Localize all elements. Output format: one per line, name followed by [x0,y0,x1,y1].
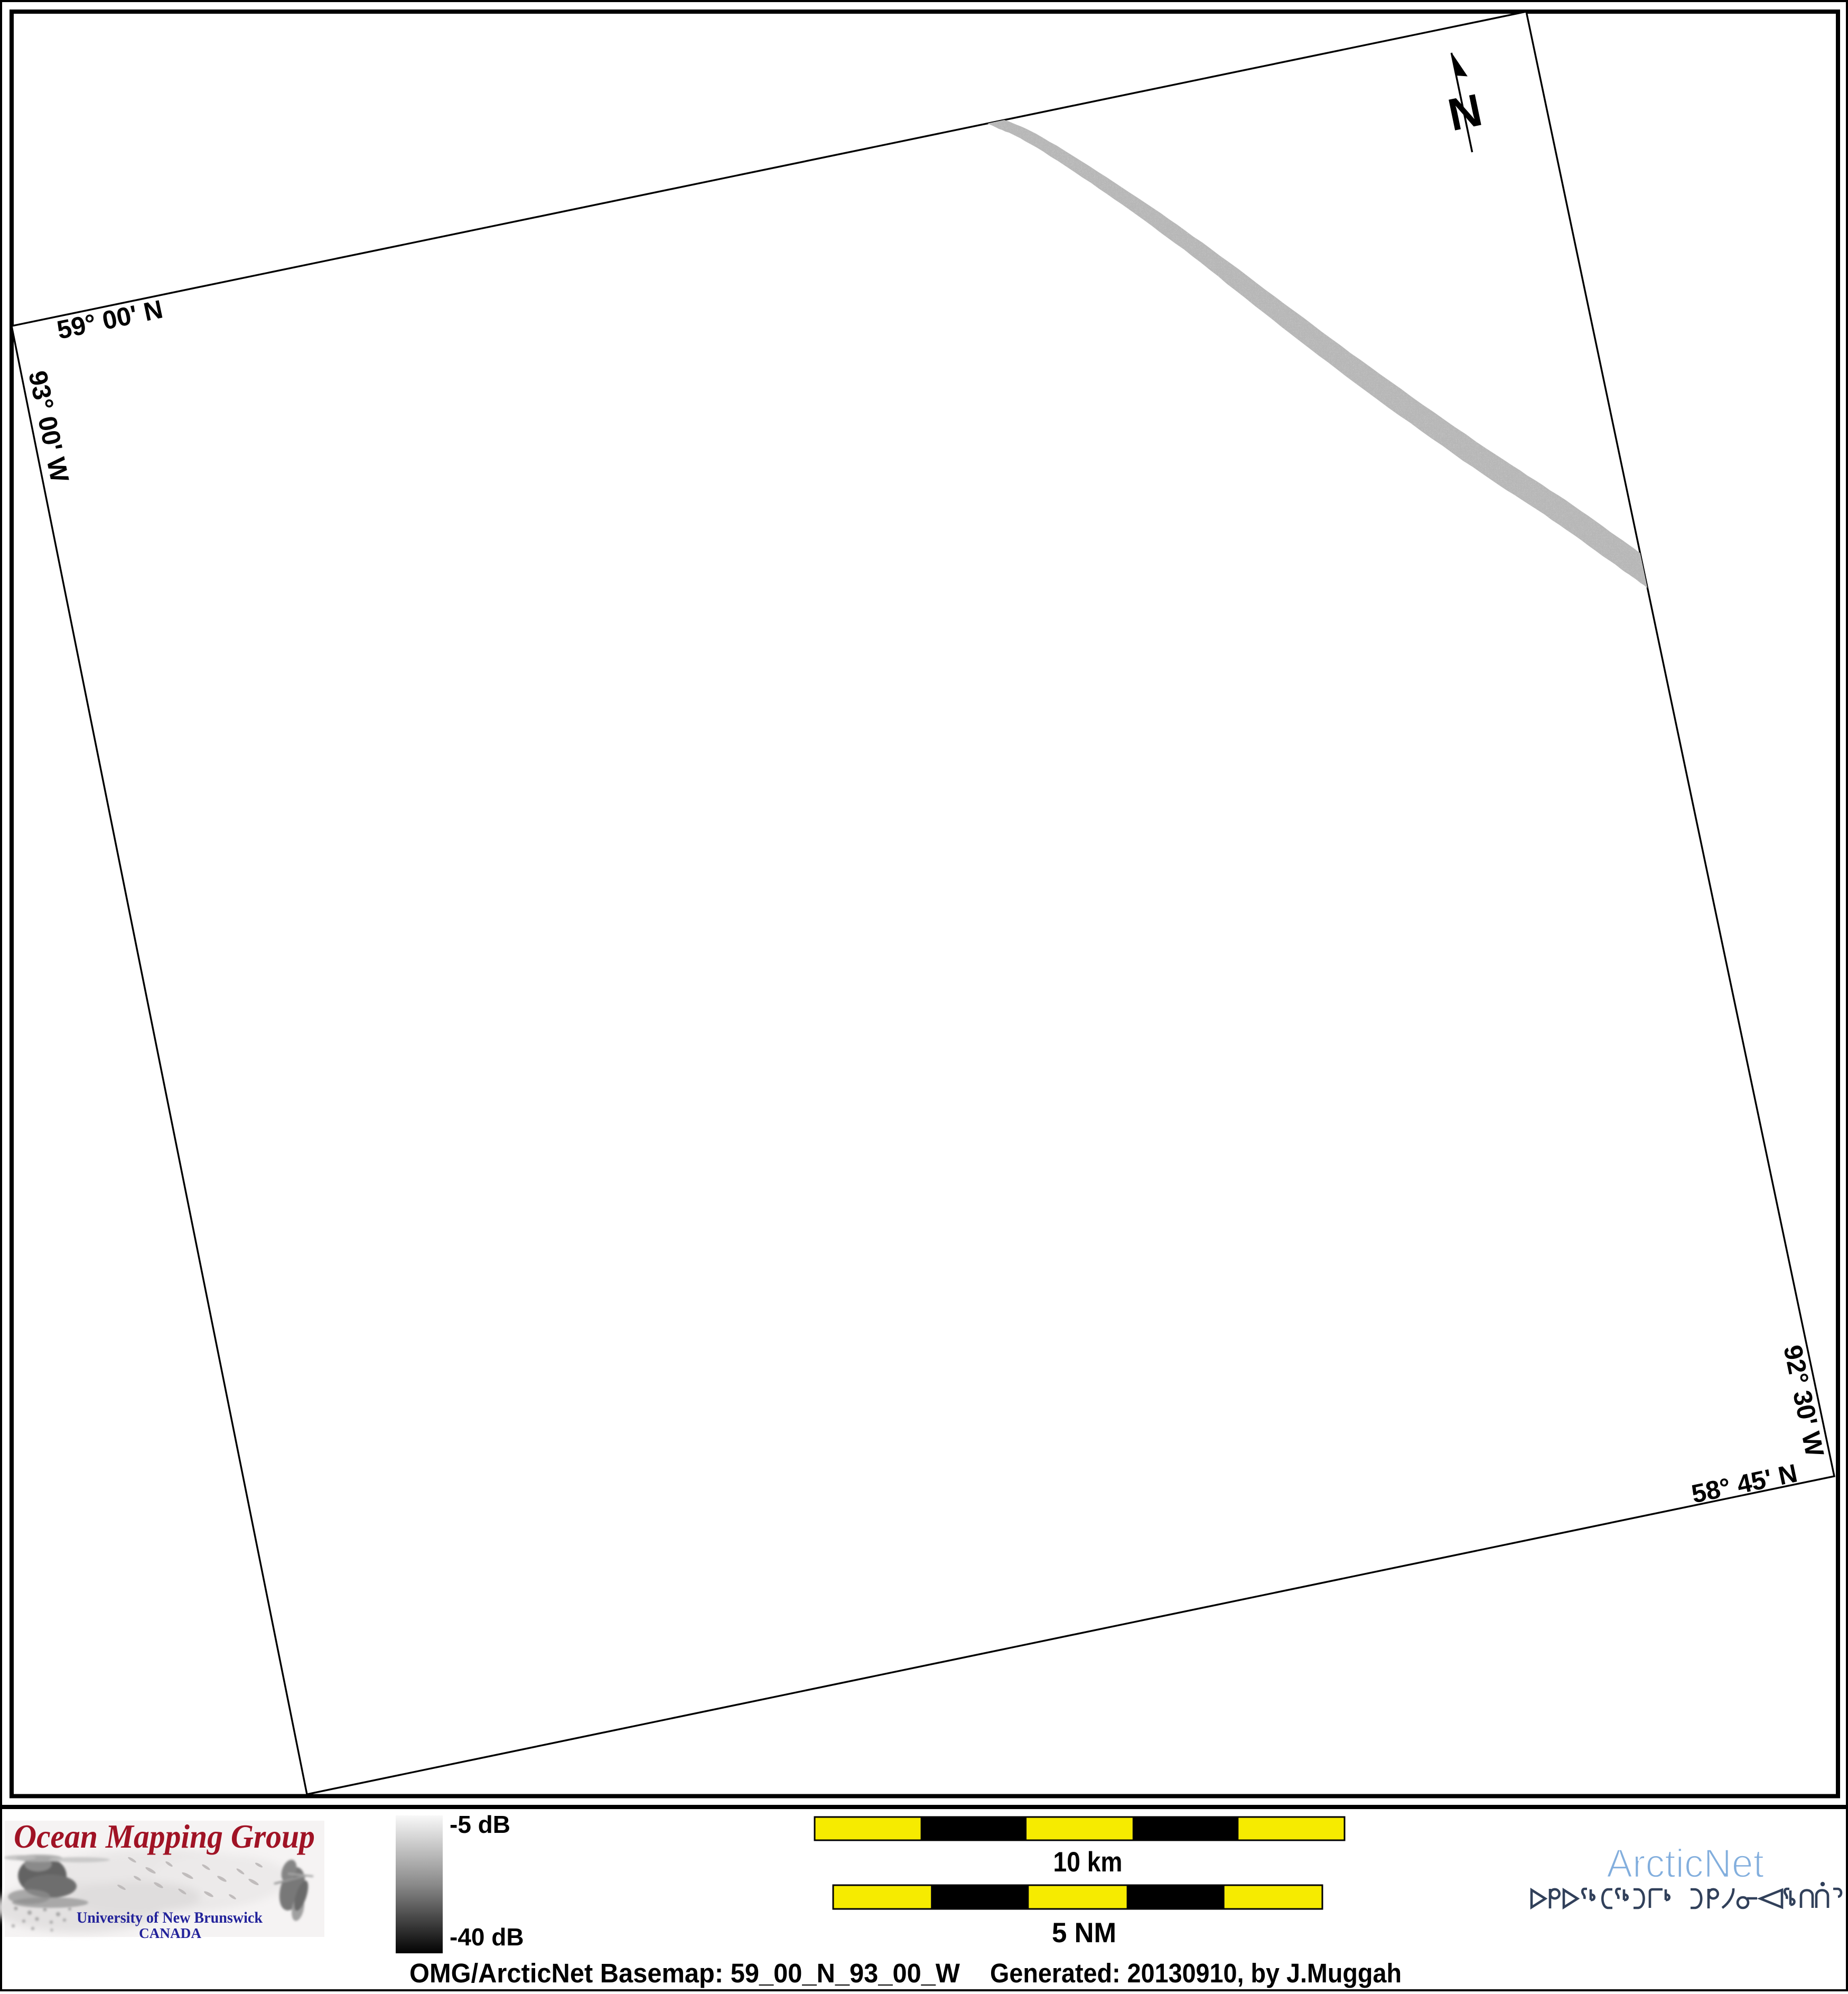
svg-text:CANADA: CANADA [139,1925,201,1941]
svg-text:10 km: 10 km [1053,1847,1123,1878]
svg-text:5 NM: 5 NM [1052,1917,1116,1949]
svg-text:Generated: 20130910, by J.Mugg: Generated: 20130910, by J.Muggah [990,1958,1402,1988]
svg-text:OMG/ArcticNet Basemap: 59_00_N: OMG/ArcticNet Basemap: 59_00_N_93_00_W [409,1958,960,1988]
svg-text:-40 dB: -40 dB [450,1923,524,1951]
svg-text:University of New Brunswick: University of New Brunswick [77,1909,263,1926]
svg-text:Ocean Mapping Group: Ocean Mapping Group [14,1818,315,1855]
svg-text:-5 dB: -5 dB [450,1811,510,1838]
svg-text:ArcticNet: ArcticNet [1607,1841,1764,1886]
